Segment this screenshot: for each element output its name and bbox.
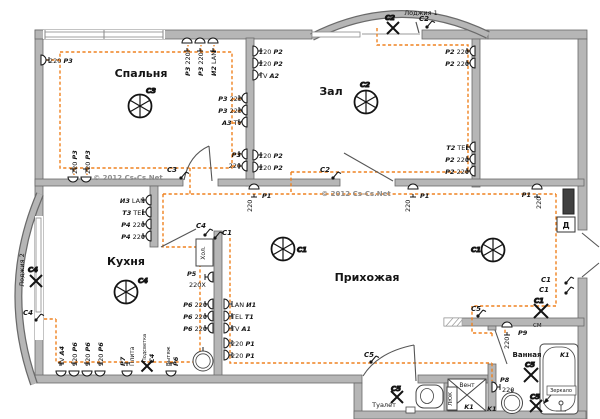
ceiling-light-spoke	[493, 250, 503, 256]
circuit-label-p3-19: P3 220	[197, 52, 205, 76]
switches: C3C2C2C4C4C1C5C5C1C1	[23, 15, 574, 364]
circuit-label-c4-63: C4	[148, 353, 156, 363]
room-label-bedroom: Спальня	[115, 67, 168, 80]
walls	[35, 30, 587, 419]
x-light-label: C2	[385, 14, 395, 22]
x-light-label: C5	[391, 385, 401, 393]
room-label-bathroom: Ванная	[513, 351, 542, 359]
hall-door	[344, 153, 393, 181]
ceiling-light-spoke	[366, 96, 376, 102]
circuit-label-a4-56: TV A4	[58, 345, 66, 367]
circuit-label-p2-29: 220 P2	[259, 152, 283, 160]
doorbell-label: Д	[562, 221, 569, 230]
wall-segment	[488, 30, 587, 39]
ceiling-light-C1: C1	[272, 238, 308, 261]
switch-C5: C5	[364, 351, 379, 364]
x-light-glyph	[534, 304, 548, 318]
circuit-label-p3-15: 220 P3	[49, 57, 73, 65]
hatch-label: ЛЮК	[448, 392, 454, 406]
switch-label: C5	[364, 351, 374, 359]
ceiling-light-C3: C3	[129, 87, 157, 118]
circuit-label-p2-35: P2 220	[445, 168, 469, 176]
ceiling-light-spoke	[130, 100, 140, 106]
circuit-label-p4-44: P4 220	[121, 221, 145, 229]
switch-label: C4	[23, 309, 33, 317]
toilet-bowl-inner	[421, 389, 434, 404]
ceiling-light-label: C2	[360, 81, 370, 89]
room-label-loggia2: Лоджия 2	[18, 253, 26, 287]
room-label-hall: Зал	[319, 85, 342, 98]
x-light-label: C5	[525, 361, 535, 369]
lights: C3C2C4C1C1C2C4C1C5C5C5	[28, 14, 548, 412]
wall-segment	[218, 179, 340, 186]
vent-shaft-label: Вент	[459, 382, 475, 389]
switch-lever	[205, 229, 213, 235]
circuit-label-p2-30: 220 P2	[259, 164, 283, 172]
wire-run	[291, 28, 468, 194]
circuit-label-k1-73: K1	[464, 403, 474, 411]
ceiling-light-label: C3	[146, 87, 156, 95]
circuit-label-t2-33: T2 TEL	[446, 144, 469, 152]
circuit-label-p6-48: P6 220	[183, 301, 207, 309]
circuit-label-p9-67: P9	[518, 329, 528, 337]
mirror-label: Зеркало	[550, 388, 572, 394]
entry-door	[582, 233, 599, 277]
circuit-label-и3-42: И3 LAN	[120, 197, 145, 205]
circuit-label-a1-53: TV A1	[230, 325, 251, 333]
circuit-label-220-25: 220	[229, 162, 241, 170]
circuit-label-плита-61: Плита	[129, 346, 136, 366]
circuit-label-220-70: 220	[502, 386, 514, 394]
socket-point	[408, 184, 418, 197]
ceiling-light-spoke	[140, 106, 150, 112]
switch-label: C2	[320, 166, 330, 174]
circuit-label-220x-47: 220X	[189, 281, 206, 289]
room-label-toilet: Туалет	[371, 401, 396, 409]
circuit-label-p1-40: P1	[522, 191, 531, 199]
ceiling-light-spoke	[283, 249, 293, 255]
circuit-label-k1-71: K1	[487, 405, 497, 413]
circuit-label-p1-38: P1	[420, 192, 429, 200]
socket-point	[182, 38, 192, 51]
room-label-hallway: Прихожая	[335, 271, 400, 284]
socket-point	[205, 272, 213, 282]
ceiling-light-spoke	[140, 100, 150, 106]
ceiling-light-spoke	[126, 286, 136, 292]
bedroom-door	[184, 146, 212, 181]
circuit-label-p3-16: 220 P3	[71, 150, 79, 174]
circuit-label-p4-45: P4 220	[121, 233, 145, 241]
kitchen-sink-bowl	[196, 354, 210, 368]
switch-C4: C4	[196, 222, 213, 237]
circuit-label-p2-31: P2 220	[445, 48, 469, 56]
ceiling-light-spoke	[483, 244, 493, 250]
circuit-label-p2-26: 220 P2	[259, 48, 283, 56]
circuit-label-p3-22: P3 220	[218, 107, 242, 115]
toilet-flush	[406, 407, 415, 413]
wall-segment	[35, 375, 362, 383]
ceiling-light-spoke	[130, 106, 140, 112]
ceiling-light-spoke	[273, 243, 283, 249]
switch-C5: C5	[471, 305, 486, 318]
circuit-label-p3-17: 220 P3	[84, 150, 92, 174]
circuit-label-220-39: 220	[404, 200, 412, 212]
wall-segment	[578, 278, 587, 419]
ceiling-light-spoke	[116, 286, 126, 292]
socket-point	[195, 38, 205, 51]
wall-segment	[578, 39, 587, 230]
circuit-label-p6-49: P6 220	[183, 313, 207, 321]
circuit-label-t3-43: T3 TEL	[122, 209, 145, 217]
ceiling-light-spoke	[356, 96, 366, 102]
switch-lever	[566, 277, 574, 283]
x-light-label: C4	[28, 266, 38, 274]
circuit-label-p3-24: P3	[232, 151, 242, 159]
ceiling-light-spoke	[483, 250, 493, 256]
x-light-label: C1	[534, 297, 544, 305]
socket-point	[208, 38, 218, 51]
circuit-label-a2-28: TV A2	[258, 72, 280, 80]
x-light-glyph	[524, 368, 538, 382]
circuit-label-p1-54: 220 P1	[231, 340, 255, 348]
bathroom-sink-bowl	[504, 395, 520, 411]
circuit-label-p6-58: 220 P6	[84, 342, 92, 366]
circuit-label-p5-46: P5	[187, 270, 197, 278]
circuit-label-и1-51: LAN И1	[231, 301, 256, 309]
kitchen-door	[161, 229, 196, 247]
watermark-2: © 2012 Cs-Cs.Net	[321, 190, 391, 198]
circuit-label-и2-20: И2 LAN	[210, 51, 218, 76]
circuit-label-p2-32: P2 220	[445, 60, 469, 68]
ceiling-light-spoke	[126, 292, 136, 298]
ceiling-light-spoke	[283, 243, 293, 249]
kitchen-window	[36, 218, 41, 312]
circuit-label-p6-50: P6 220	[183, 325, 207, 333]
switch-label: C5	[471, 305, 481, 313]
ceiling-light-C2: C2	[355, 81, 378, 114]
socket-point	[249, 184, 259, 197]
switch-label: C4	[196, 222, 206, 230]
circuit-label-p6-57: 220 P6	[71, 342, 79, 366]
circuit-label-p8-69: P8	[500, 376, 510, 384]
socket-point	[502, 322, 512, 335]
ceiling-light-label: C1	[297, 246, 307, 254]
switch-label: C1	[541, 276, 551, 284]
ceiling-light-C1: C1	[471, 239, 505, 262]
wire-run	[230, 238, 492, 363]
ceiling-light-spoke	[356, 102, 366, 108]
circuit-label-p2-27: 220 P2	[259, 60, 283, 68]
wall-segment	[214, 231, 222, 377]
switch-lever	[566, 287, 574, 293]
room-label-kitchen: Кухня	[107, 255, 145, 268]
circuit-label-220-68: 220	[503, 337, 511, 349]
circuit-label-p3-18: P3 220	[184, 52, 192, 76]
ceiling-light-spoke	[493, 244, 503, 250]
x-light-label: C5	[530, 393, 540, 401]
wall-segment	[488, 326, 496, 330]
wall-light-C5: C5	[524, 361, 538, 382]
watermark-1: © 2012 Cs-Cs.Net	[93, 174, 163, 182]
switch-lever	[333, 172, 341, 178]
ceiling-light-spoke	[116, 292, 126, 298]
circuit-label-a3-23: A3 TV	[221, 119, 243, 127]
circuit-label-p2-34: P2 220	[445, 156, 469, 164]
ceiling-light-spoke	[366, 102, 376, 108]
switch-C1: C1	[541, 276, 574, 285]
room-label-loggia1: Лоджия 1	[404, 9, 438, 17]
wall-segment	[444, 318, 584, 326]
socket-point	[532, 184, 542, 197]
circuit-label-см-66: СМ	[533, 323, 542, 329]
bathtub-faucet	[559, 401, 563, 405]
circuit-label-p6-65: P6	[172, 356, 180, 366]
circuit-label-p6-59: 220 P6	[97, 342, 105, 366]
wall-light-C1: C1	[534, 297, 548, 318]
circuit-label-p1-36: P1	[262, 192, 271, 200]
switch-C2: C2	[320, 166, 341, 180]
circuit-label-p1-55: 220 P1	[231, 352, 255, 360]
socket-point	[492, 382, 500, 392]
floor-plan-canvas: C3C2C4C1C1C2C4C1C5C5C5C3C2C2C4C4C1C5C5C1…	[0, 0, 600, 419]
circuit-label-k1-72: K1	[560, 351, 570, 359]
switch-label: C1	[539, 286, 549, 294]
plan-labels: СпальняЗалКухняПрихожаяТуалетВаннаяЛоджи…	[18, 9, 572, 413]
apartment-electrical-plan: C3C2C4C1C1C2C4C1C5C5C5C3C2C2C4C4C1C5C5C1…	[0, 0, 600, 419]
circuit-label-p7-60: P7	[119, 356, 127, 366]
hall-window	[312, 32, 360, 37]
wall-points	[41, 38, 542, 392]
ceiling-light-label: C4	[138, 277, 148, 285]
ceiling-light-label: C1	[471, 246, 481, 254]
circuit-label-p3-21: P3 220	[218, 95, 242, 103]
socket-point	[41, 55, 49, 65]
switch-label: C3	[167, 166, 177, 174]
wall-segment	[395, 179, 584, 186]
circuit-label-220-41: 220	[535, 197, 543, 209]
ceiling-light-spoke	[273, 249, 283, 255]
electrical-panel	[563, 189, 574, 214]
ceiling-light-C4: C4	[115, 277, 149, 304]
circuit-label-220-37: 220	[246, 200, 254, 212]
x-light-glyph	[387, 22, 399, 34]
switch-label: C1	[222, 229, 232, 237]
fridge-label: Хол.	[200, 246, 207, 260]
balcony-door-leaf	[416, 22, 419, 33]
circuit-label-t1-52: TEL T1	[230, 313, 254, 321]
